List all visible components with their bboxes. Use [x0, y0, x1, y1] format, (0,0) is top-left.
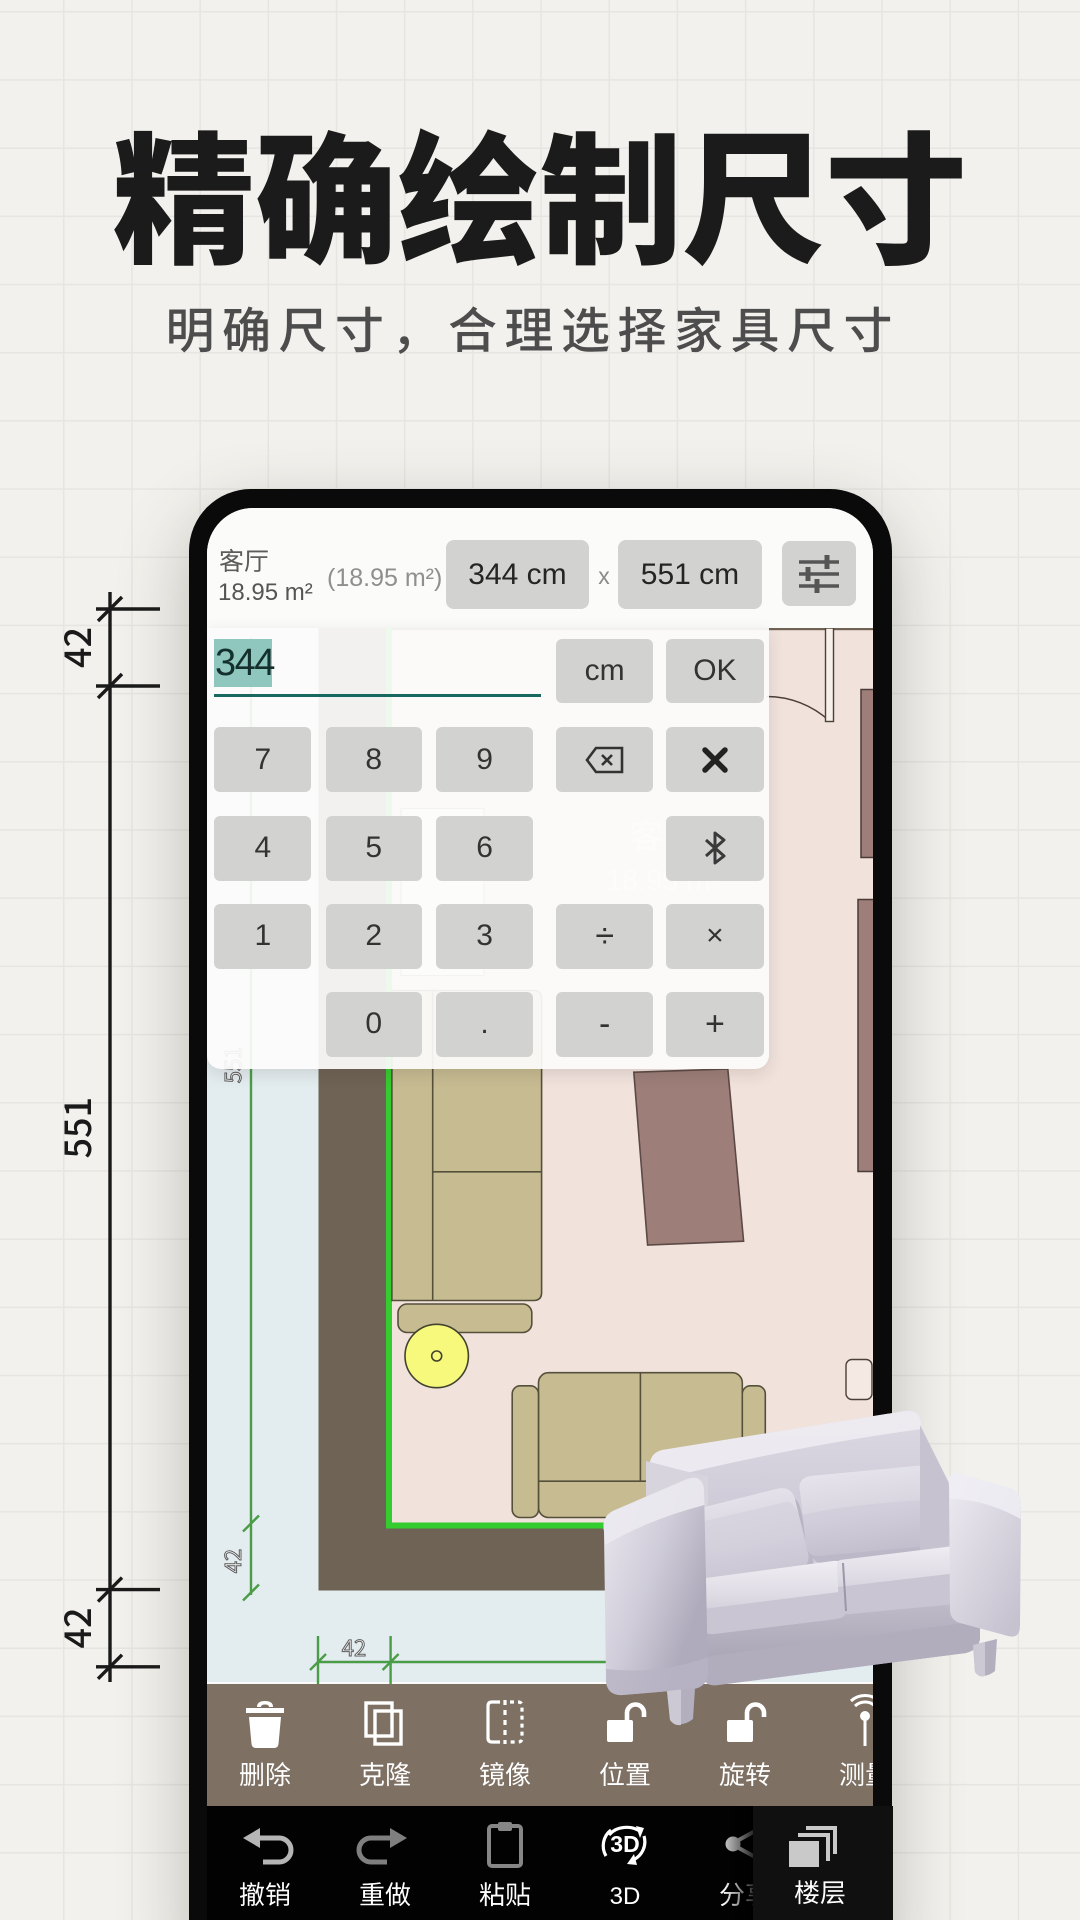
svg-text:(18.95 m²): (18.95 m²) — [327, 564, 442, 592]
svg-text:x: x — [598, 563, 610, 589]
svg-text:18.95 m²: 18.95 m² — [218, 579, 313, 606]
svg-text:3D: 3D — [610, 1883, 641, 1910]
svg-text:3D: 3D — [610, 1831, 639, 1857]
